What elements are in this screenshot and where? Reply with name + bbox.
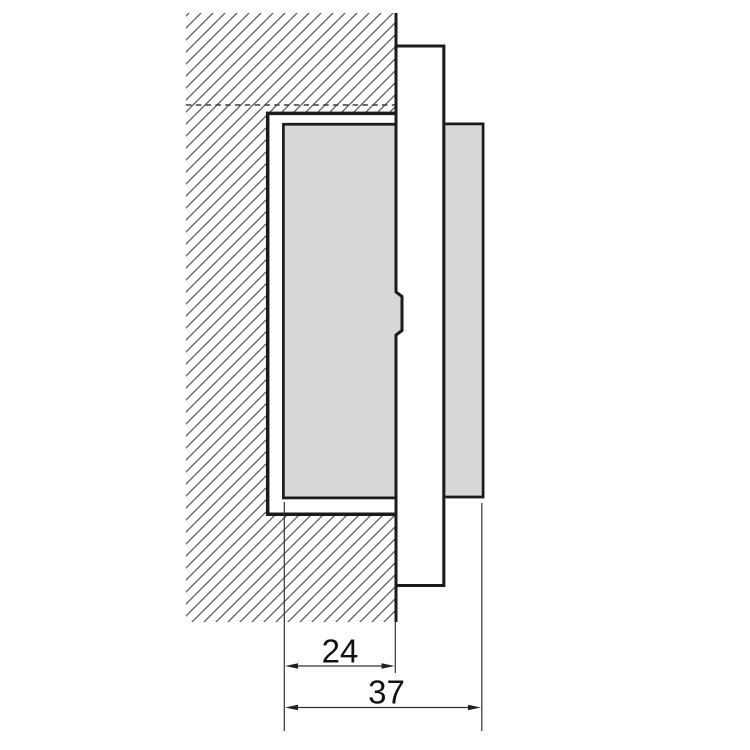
svg-text:37: 37 <box>368 674 405 711</box>
svg-text:24: 24 <box>322 633 359 670</box>
